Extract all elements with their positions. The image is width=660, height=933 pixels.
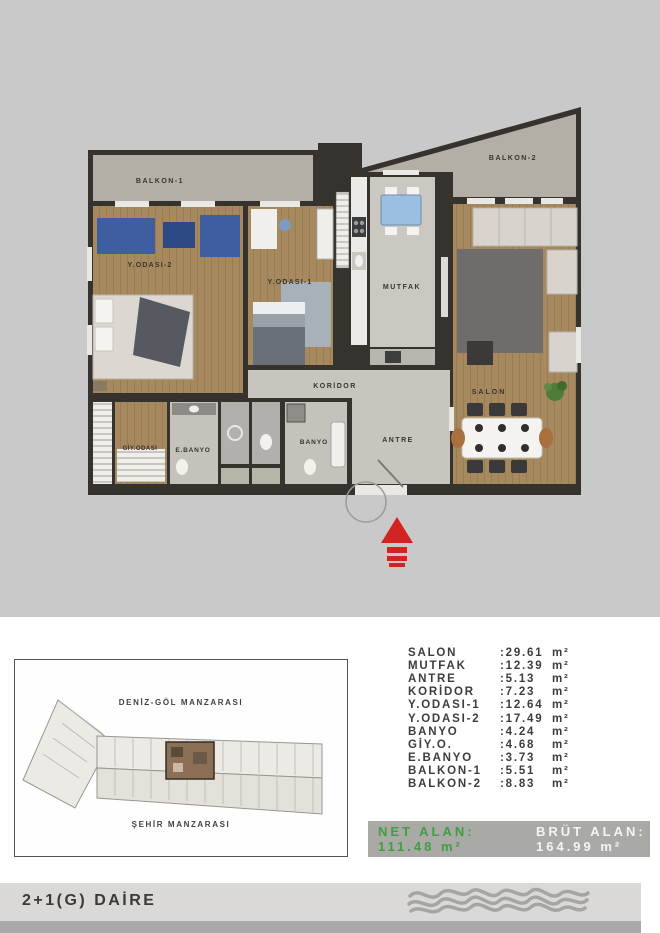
table-row: Y.ODASI-2:17.49m² [408,712,570,725]
city-view-label: ŞEHİR MANZARASI [15,820,347,829]
room-balkon-1 [93,155,313,201]
room-label-mutfak: MUTFAK [383,284,421,291]
table-row: GİY.O.:4.68m² [408,738,570,751]
mat-1 [221,468,249,484]
gross-area: BRÜT ALAN: 164.99 m² [536,821,646,857]
table-row: BANYO:4.24m² [408,725,570,738]
entrance-opening [355,485,407,495]
area-table: SALON:29.61m² MUTFAK:12.39m² ANTRE:5.13m… [408,646,570,791]
table-row: BALKON-1:5.51m² [408,765,570,778]
room-label-salon: SALON [472,389,507,396]
mat-2 [252,468,280,484]
net-area-value: 111.48 m² [378,839,536,854]
entrance-arrow-icon [381,517,413,567]
room-label-koridor: KORİDOR [313,382,357,390]
washer [287,404,305,422]
shower-cell [221,402,249,464]
salon-rug [457,249,543,353]
table-row: BALKON-2:8.83m² [408,778,570,791]
net-area: NET ALAN: 111.48 m² [368,821,536,857]
redacted-scribble [405,884,595,918]
room-label-antre: ANTRE [382,437,414,444]
bathtub [331,422,345,467]
stove [352,217,366,237]
wardrobe [317,209,333,259]
room-label-banyo: BANYO [300,439,328,446]
totals-bar: NET ALAN: 111.48 m² BRÜT ALAN: 164.99 m² [368,821,650,857]
plan-background-panel: BALKON-1 BALKON-2 Y.ODASI-2 Y.ODASI-1 MU… [0,0,660,617]
wc-cell [252,402,280,464]
room-label-balkon-1: BALKON-1 [136,178,184,185]
tv-unit [441,257,448,317]
sea-lake-view-label: DENİZ-GÖL MANZARASI [15,698,347,707]
room-label-y-odasi-1: Y.ODASI-1 [267,279,312,286]
room-label-balkon-2: BALKON-2 [489,155,537,162]
room-label-giy-odasi: GİY.ODASI [123,445,158,452]
apartment-type-label: 2+1(G) DAİRE [22,892,156,910]
desk [251,209,277,249]
room-giy-odasi-shelf [93,402,112,484]
coffee-table [467,341,493,365]
room-label-y-odasi-2: Y.ODASI-2 [127,262,172,269]
kitchen-counter-bottom [370,349,435,365]
table-row: MUTFAK:12.39m² [408,659,570,672]
net-area-label: NET ALAN: [378,824,536,839]
table-row: Y.ODASI-1:12.64m² [408,699,570,712]
armchair [549,332,577,372]
footer-bottom-strip [0,921,641,933]
shaft [336,192,349,268]
table-row: KORİDOR:7.23m² [408,686,570,699]
kitchen-table [381,195,421,225]
floor-plan: BALKON-1 BALKON-2 Y.ODASI-2 Y.ODASI-1 MU… [85,97,585,567]
table-row: SALON:29.61m² [408,646,570,659]
table-row: ANTRE:5.13m² [408,672,570,685]
gross-area-label: BRÜT ALAN: [536,824,646,839]
floorplan-sheet: BALKON-1 BALKON-2 Y.ODASI-2 Y.ODASI-1 MU… [0,0,660,933]
gross-area-value: 164.99 m² [536,839,646,854]
table-row: E.BANYO:3.73m² [408,752,570,765]
room-label-e-banyo: E.BANYO [175,447,210,454]
giy-odasi-rack [117,449,165,482]
key-plan: DENİZ-GÖL MANZARASI ŞEHİR MANZARASI [14,659,348,857]
